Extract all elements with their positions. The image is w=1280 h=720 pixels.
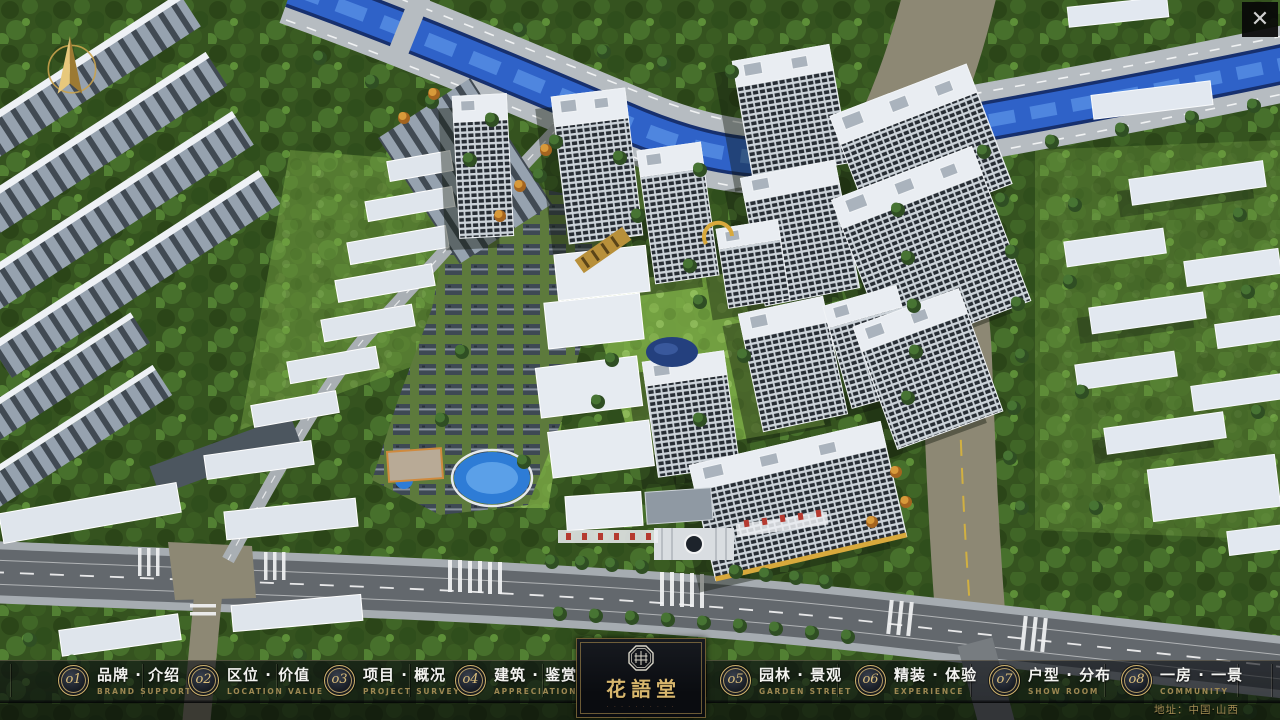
seal-emblem-icon: [628, 645, 654, 671]
nav-number-badge: o7: [989, 665, 1020, 696]
nav-label-en: BRAND SUPPORT: [97, 687, 192, 696]
nav-label-zh: 一房 · 一景: [1160, 664, 1243, 685]
nav-item-brand-intro[interactable]: o1 品牌 · 介绍 BRAND SUPPORT: [58, 659, 192, 701]
nav-item-location-value[interactable]: o2 区位 · 价值 LOCATION VALUE: [188, 659, 324, 701]
logo-tagline: · · · · · · · · · ·: [607, 704, 675, 710]
nav-number-badge: o1: [58, 665, 89, 696]
nav-divider: [1271, 664, 1272, 697]
nav-label-en: GARDEN STREET: [759, 687, 852, 696]
nav-label-en: APPRECIATION: [494, 687, 577, 696]
nav-item-interior-experience[interactable]: o6 精装 · 体验 EXPERIENCE: [855, 659, 977, 701]
nav-item-floorplan-distribution[interactable]: o7 户型 · 分布 SHOW ROOM: [989, 659, 1111, 701]
nav-label-zh: 品牌 · 介绍: [97, 664, 180, 685]
nav-label-en: PROJECT SURVEY: [363, 687, 461, 696]
logo-title: 花語堂: [606, 673, 681, 702]
nav-item-one-room-one-view[interactable]: o8 一房 · 一景 COMMUNITY: [1121, 659, 1243, 701]
nav-number-badge: o2: [188, 665, 219, 696]
nav-label-en: EXPERIENCE: [894, 687, 964, 696]
compass-icon: [40, 30, 106, 102]
nav-number-badge: o6: [855, 665, 886, 696]
aerial-site-plan-render: [0, 0, 1280, 720]
nav-item-garden-landscape[interactable]: o5 园林 · 景观 GARDEN STREET: [720, 659, 852, 701]
nav-number-badge: o4: [455, 665, 486, 696]
nav-number-badge: o3: [324, 665, 355, 696]
nav-label-zh: 户型 · 分布: [1028, 664, 1111, 685]
nav-label-zh: 区位 · 价值: [227, 664, 310, 685]
logo-panel: 花語堂 · · · · · · · · · ·: [576, 638, 706, 718]
nav-number-badge: o5: [720, 665, 751, 696]
nav-item-architecture[interactable]: o4 建筑 · 鉴赏 APPRECIATION: [455, 659, 577, 701]
nav-divider: [10, 664, 11, 697]
nav-label-zh: 建筑 · 鉴赏: [494, 664, 577, 685]
nav-label-en: COMMUNITY: [1160, 687, 1229, 696]
nav-item-project-survey[interactable]: o3 项目 · 概况 PROJECT SURVEY: [324, 659, 461, 701]
nav-label-en: SHOW ROOM: [1028, 687, 1099, 696]
nav-label-en: LOCATION VALUE: [227, 687, 324, 696]
close-icon: ✕: [1251, 9, 1269, 31]
presentation-window: ✕ o1 品牌 · 介绍 BRAND SUPPORT o2 区位 · 价值 LO…: [0, 0, 1280, 720]
nav-number-badge: o8: [1121, 665, 1152, 696]
nav-label-zh: 项目 · 概况: [363, 664, 446, 685]
nav-label-zh: 园林 · 景观: [759, 664, 842, 685]
nav-label-zh: 精装 · 体验: [894, 664, 977, 685]
close-button[interactable]: ✕: [1242, 2, 1278, 37]
project-address: 地址：中国·山西: [1154, 702, 1239, 717]
